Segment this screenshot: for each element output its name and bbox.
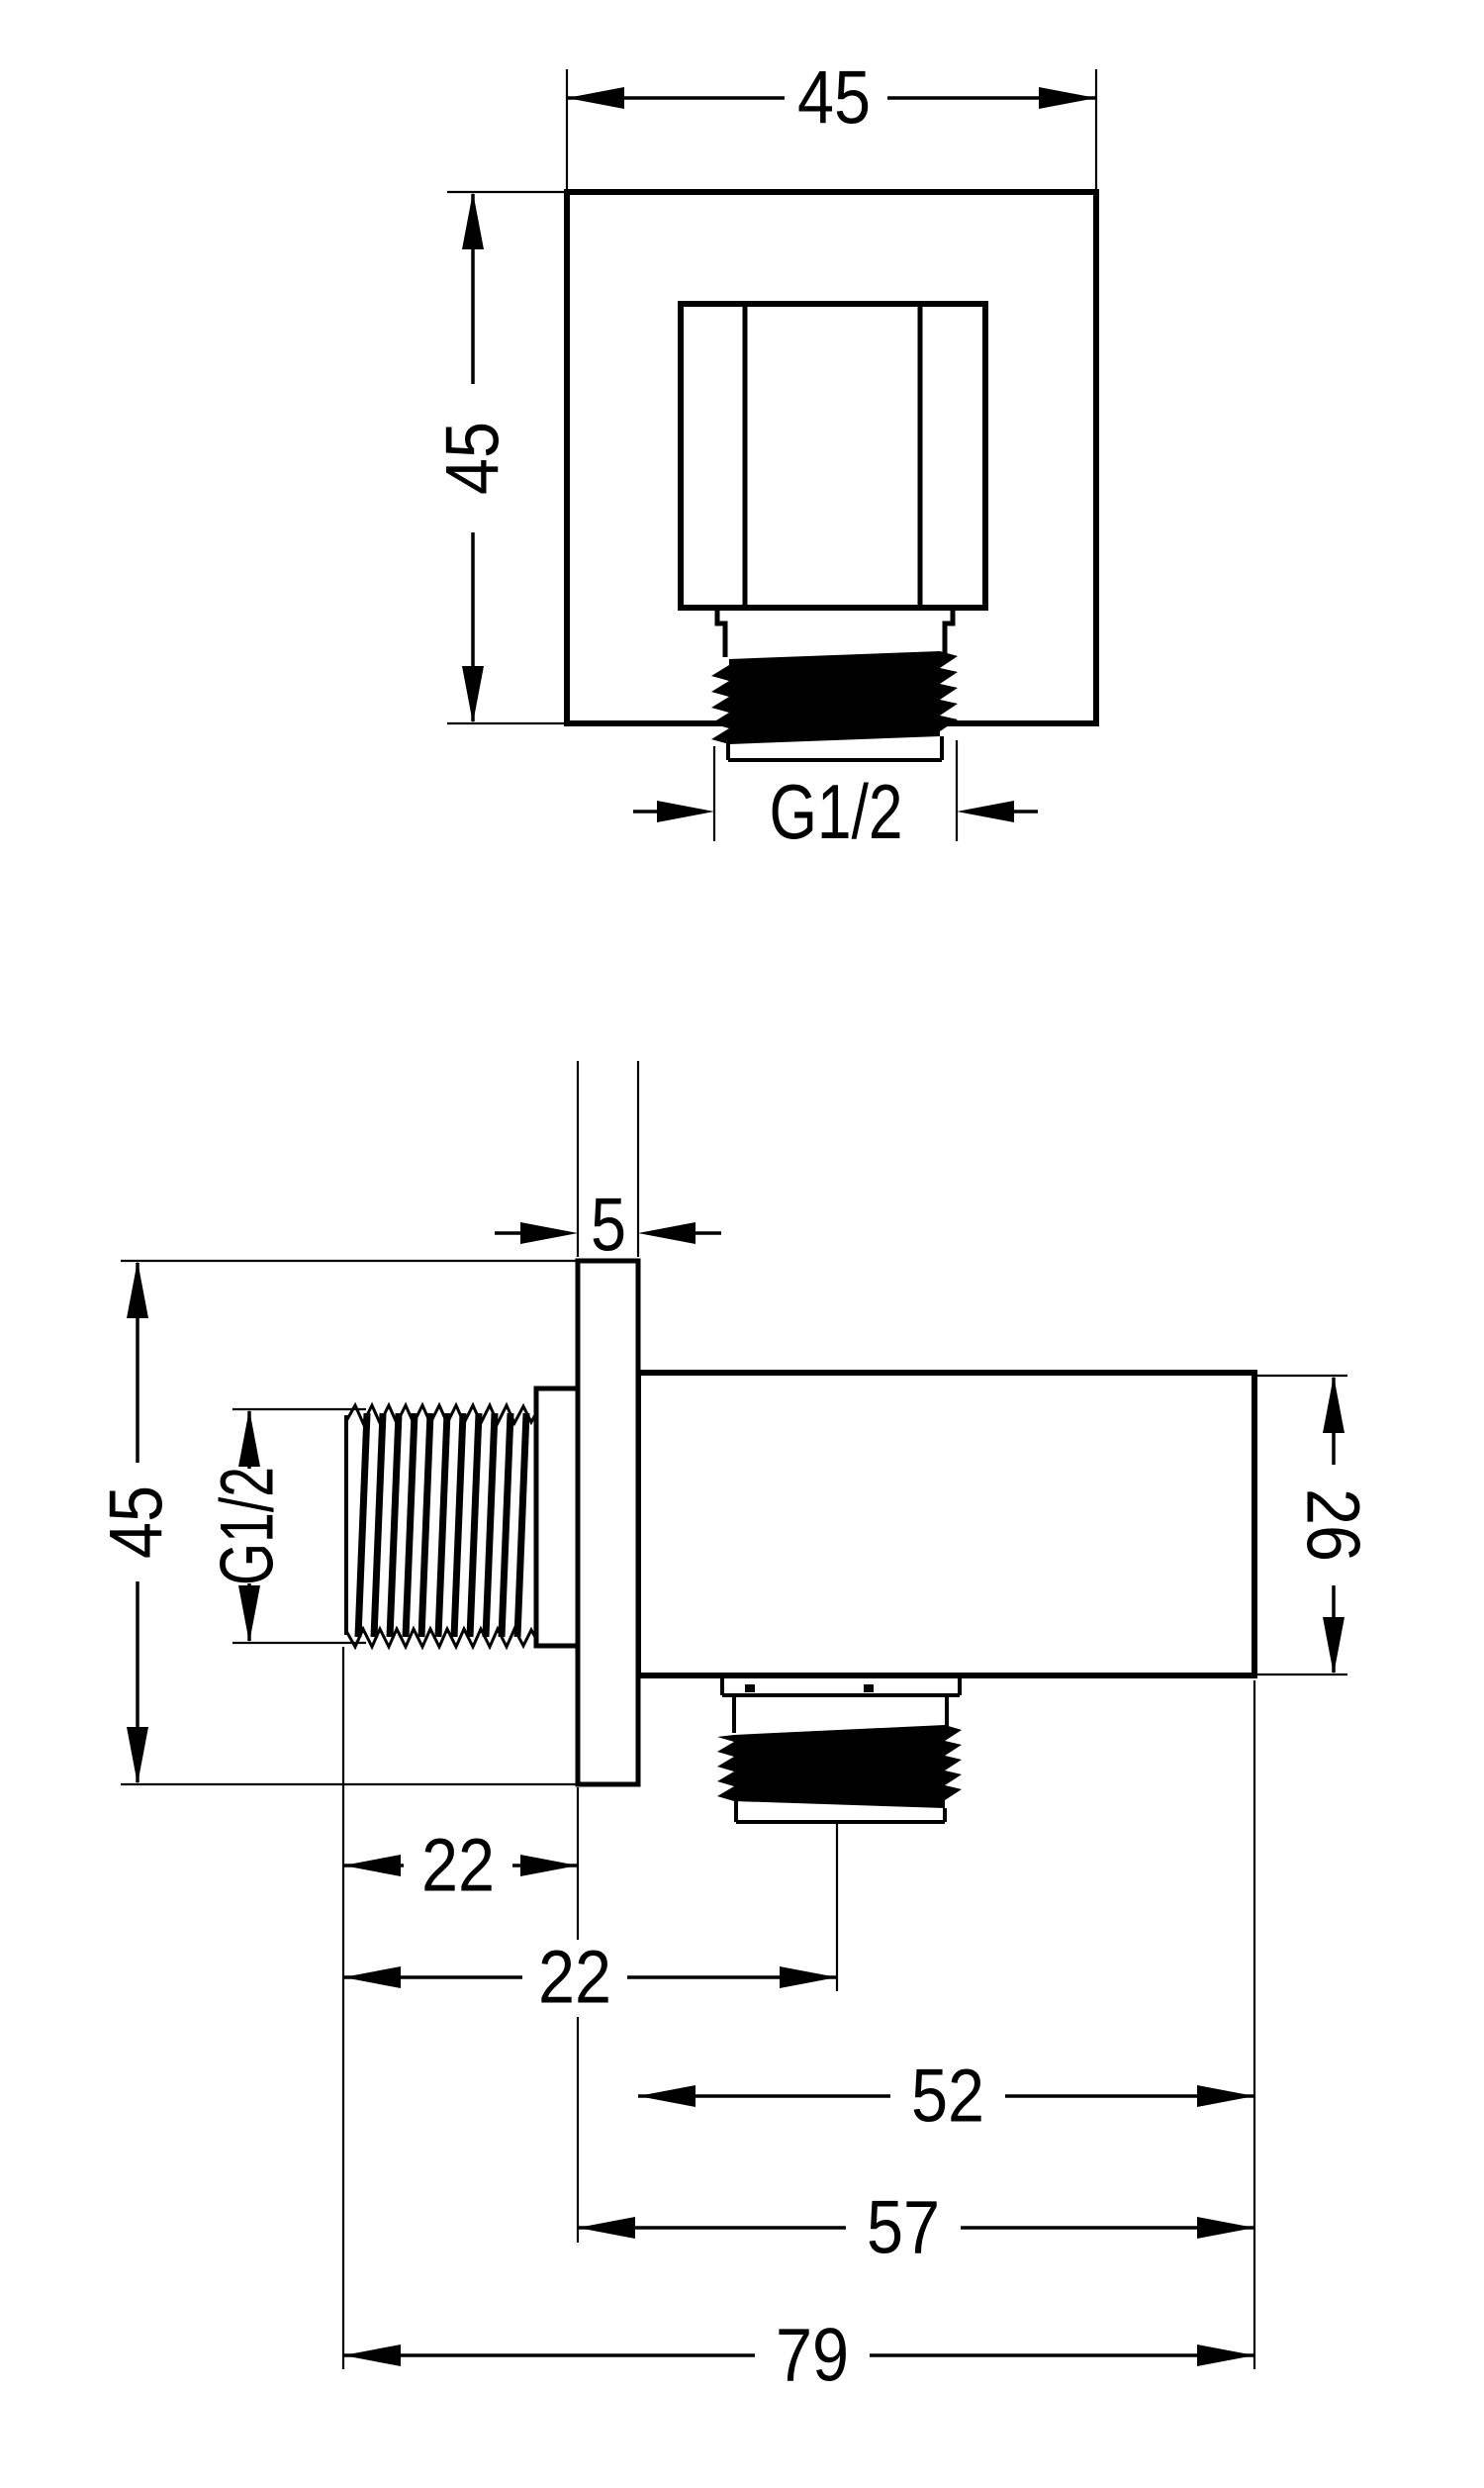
arrowhead-right (520, 1855, 578, 1876)
side-body (638, 1373, 1254, 1675)
arrowhead-right (657, 801, 714, 822)
thread-length-dimension: 22 (343, 1824, 578, 1908)
depth-with-plate-label: 57 (867, 2186, 940, 2270)
outlet-collar-nub (745, 1684, 755, 1692)
arrowhead-down (462, 666, 484, 723)
arrowhead-up (127, 1261, 148, 1318)
total-depth-dimension: 79 (343, 2314, 1254, 2398)
arrowhead-right (780, 1966, 837, 1988)
front-thread-label: G1/2 (770, 768, 903, 855)
outlet-connector (717, 1677, 962, 1991)
side-collar (536, 1388, 578, 1646)
arrowhead-down (238, 1585, 260, 1643)
front-height-label: 45 (431, 422, 515, 495)
side-thread-label: G1/2 (206, 1467, 290, 1585)
front-height-dimension: 45 (431, 192, 568, 723)
arrowhead-right (520, 1222, 578, 1244)
plate-thickness-label: 5 (591, 1184, 626, 1268)
depth-with-plate-dimension: 57 (578, 2186, 1254, 2270)
front-width-dimension: 45 (567, 56, 1096, 191)
arrowhead-down (1323, 1617, 1345, 1675)
body-depth-label: 52 (911, 2055, 984, 2139)
neck-step-left (717, 608, 725, 657)
arrowhead-left (638, 2085, 696, 2107)
front-thread-dimension: G1/2 (633, 740, 1038, 855)
body-depth-dimension: 52 (638, 2055, 1254, 2139)
arrowhead-up (1323, 1376, 1345, 1433)
outlet-collar-nub (864, 1684, 874, 1692)
front-square-plate (567, 192, 1096, 723)
total-depth-label: 79 (776, 2314, 849, 2398)
body-height-label: 26 (1291, 1488, 1375, 1562)
front-hex-nut (681, 304, 985, 608)
thread-hatching (358, 1413, 526, 1637)
front-thread (711, 651, 958, 744)
arrowhead-left (343, 2344, 401, 2366)
front-view: 45 45 G1 (431, 56, 1097, 856)
arrowhead-up (462, 192, 484, 249)
outlet-thread (717, 1725, 962, 1808)
side-wall-plate (578, 1261, 638, 1784)
drawing-page: 45 45 G1 (0, 0, 1484, 2488)
outlet-collar (722, 1677, 960, 1695)
front-width-label: 45 (797, 56, 871, 141)
side-thread (346, 1405, 536, 1647)
arrowhead-left (578, 2217, 635, 2239)
thread-length-label: 22 (421, 1824, 495, 1908)
arrowhead-left (343, 1966, 401, 1988)
arrowhead-right (1197, 2217, 1254, 2239)
arrowhead-left (567, 87, 624, 109)
arrowhead-left (638, 1222, 696, 1244)
arrowhead-up (238, 1409, 260, 1467)
outlet-offset-label: 22 (538, 1936, 611, 2020)
arrowhead-down (127, 1727, 148, 1784)
body-height-dimension: 26 (1257, 1376, 1375, 1675)
technical-drawing: 45 45 G1 (0, 0, 1484, 2488)
arrowhead-right (1197, 2085, 1254, 2107)
arrowhead-right (1039, 87, 1096, 109)
outlet-offset-dimension: 22 (343, 1936, 837, 2020)
arrowhead-left (957, 801, 1014, 822)
side-view: 5 45 G1/2 (95, 1061, 1375, 2398)
side-height-label: 45 (95, 1485, 179, 1559)
arrowhead-left (343, 1855, 401, 1876)
plate-thickness-dimension: 5 (495, 1061, 721, 1268)
side-thread-dimension: G1/2 (206, 1409, 367, 1643)
neck-step-right (945, 608, 953, 657)
arrowhead-right (1197, 2344, 1254, 2366)
